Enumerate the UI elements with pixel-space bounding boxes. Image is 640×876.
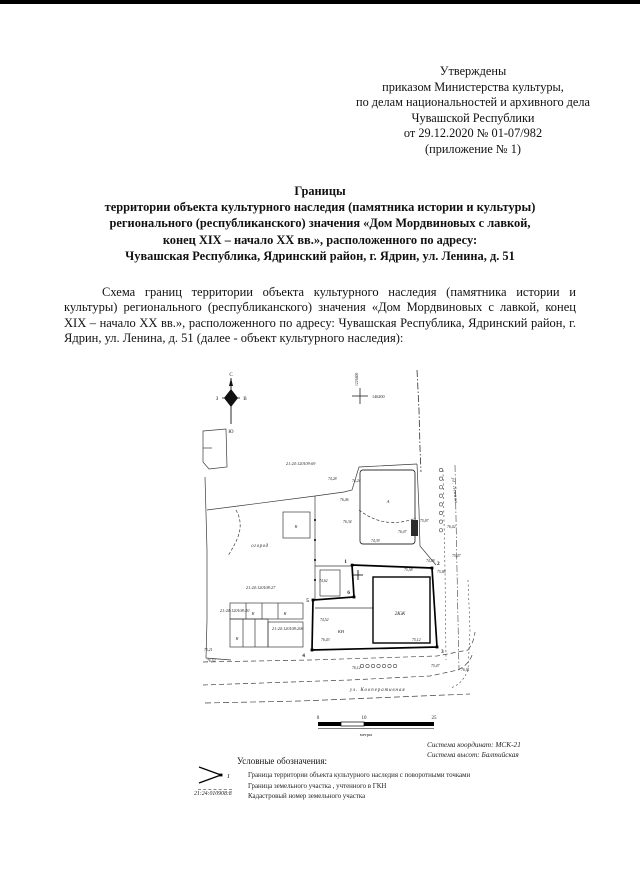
body-paragraph: Схема границ территории объекта культурн…	[64, 285, 576, 347]
elevation-label: 76,34	[343, 520, 352, 525]
scale-unit-label: метры	[360, 732, 372, 737]
legend-item-heritage-boundary: Граница территории объекта культурного н…	[248, 772, 470, 779]
elevation-label: 76,52	[207, 659, 216, 664]
heritage-building	[373, 577, 430, 643]
elevation-label: 76,12	[352, 666, 361, 671]
grid-x-label: 146200	[372, 394, 385, 399]
elevation-label: 76,46	[340, 498, 349, 503]
compass-west-label: З	[216, 397, 219, 402]
shed-label: Н	[251, 612, 255, 616]
approval-line: от 29.12.2020 № 01-07/982	[337, 126, 609, 142]
legend-heading: Условные обозначения:	[237, 756, 327, 766]
building-litera-label: А	[386, 499, 390, 504]
point-2-label: 2	[437, 561, 440, 567]
approval-line: (приложение № 1)	[337, 142, 609, 158]
compass-north-label: С	[229, 373, 233, 378]
title-line: территории объекта культурного наследия …	[58, 199, 582, 215]
title-line: конец XIX – начало XX вв.», расположенно…	[58, 232, 582, 248]
elevation-label: 75,88	[437, 570, 446, 575]
document-title: Границы территории объекта культурного н…	[58, 183, 582, 264]
parcel-boundaries	[203, 429, 436, 660]
point-3-label: 3	[441, 649, 444, 655]
elevation-label: 74,48	[426, 559, 435, 564]
elevation-label: 75,12	[412, 638, 421, 643]
point-5-label: 5	[306, 598, 309, 604]
building-litera-a	[360, 470, 415, 544]
grid-cross	[352, 388, 368, 404]
elevation-label: 76,02	[447, 525, 456, 530]
approval-line: по делам национальностей и архивного дел…	[337, 95, 609, 111]
coordinate-systems-note: Система координат: МСК-21 Система высот:…	[427, 740, 567, 759]
quarter-number-label: 21:24:120109:69	[286, 461, 316, 466]
compass-south-label: Ю	[228, 430, 233, 435]
compass-rose	[222, 378, 240, 424]
elevation-label: 75,87	[420, 519, 430, 524]
nonres-building-label: КН	[337, 629, 345, 634]
scale-bar	[318, 722, 434, 729]
parcel-number-label: 21:24:120108:27	[246, 585, 276, 590]
legend-boundary-symbol: 1	[197, 765, 241, 785]
point-4-label: 4	[302, 653, 305, 659]
legend-cadastral-number-sample: 21:24:010908:8	[194, 791, 232, 797]
elevation-label: 76,43	[321, 638, 330, 643]
elevation-label: 75,58	[404, 568, 413, 573]
elevation-label: 74,28	[328, 477, 337, 482]
point-1-label: 1	[344, 559, 347, 565]
scale-tick-0: 0	[317, 716, 320, 721]
elevation-label: 74,24	[352, 479, 361, 484]
approval-line: Утверждены	[337, 64, 609, 80]
approval-block: Утверждены приказом Министерства культур…	[337, 64, 609, 158]
scan-edge-line	[0, 0, 640, 4]
height-system-line: Система высот: Балтийская	[427, 750, 567, 760]
approval-line: Чувашской Республики	[337, 111, 609, 127]
elevation-label: 76,91	[461, 668, 470, 673]
shed-label: Н	[283, 612, 287, 616]
elevation-label: 75,47	[431, 664, 441, 669]
elevation-label: 74,39	[371, 539, 380, 544]
quarter-boundary-line	[417, 370, 421, 472]
approval-line: приказом Министерства культуры,	[337, 80, 609, 96]
legend-point-number: 1	[227, 774, 230, 780]
elevation-label: 76,07	[398, 530, 408, 535]
document-page: Утверждены приказом Министерства культур…	[0, 0, 640, 876]
legend-item-gkn-boundary: Граница земельного участка , учтенного в…	[248, 783, 386, 790]
coord-system-line: Система координат: МСК-21	[427, 740, 567, 750]
garden-label: огород	[251, 544, 268, 549]
boundary-scheme-map: С Ю З В 146200 1226400	[0, 370, 640, 742]
title-line: Границы	[58, 183, 582, 199]
parcel-number-label: 21:24:120108:20	[220, 608, 250, 613]
compass-east-label: В	[243, 397, 247, 402]
scale-tick-25: 25	[432, 716, 438, 721]
survey-cross	[353, 570, 363, 580]
street-right-trees	[439, 468, 442, 532]
elevation-label: 74,52	[320, 618, 329, 623]
legend-item-cadastral-number: Кадастровый номер земельного участка	[248, 793, 365, 800]
building-annex-dark	[411, 520, 418, 536]
street-bottom-label: ул. Кооперативная	[349, 688, 406, 693]
street-right-label: ул. Ленина	[451, 477, 459, 504]
shed-label: Н	[235, 637, 239, 641]
shed-label: Н	[294, 525, 298, 529]
point-6-label: 6	[347, 590, 350, 596]
street-trees-row	[360, 664, 396, 667]
title-line: регионального (республиканского) значени…	[58, 215, 582, 231]
legend-gkn-line-symbol	[198, 789, 232, 790]
parcel-number-label: 21:24:120108:206	[272, 626, 304, 631]
scale-tick-10: 10	[362, 716, 368, 721]
title-line: Чувашская Республика, Ядринский район, г…	[58, 248, 582, 264]
grid-y-label: 1226400	[355, 373, 359, 386]
heritage-building-label: 2КЖ	[395, 612, 406, 617]
elevation-label: 75,21	[204, 648, 213, 653]
